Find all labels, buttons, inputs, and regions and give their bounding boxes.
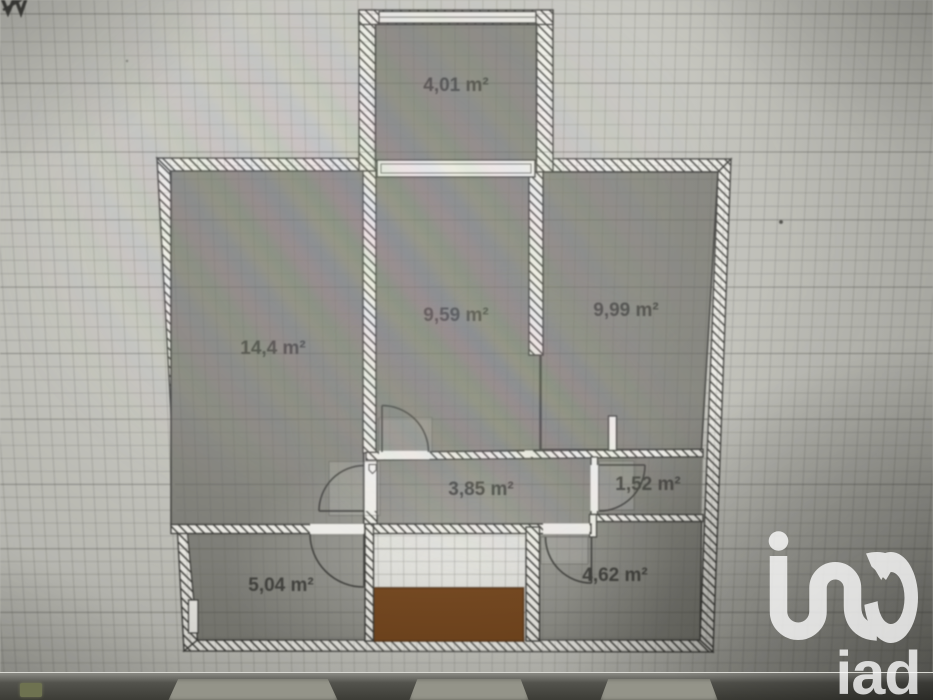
svg-text:iad: iad	[835, 639, 920, 700]
